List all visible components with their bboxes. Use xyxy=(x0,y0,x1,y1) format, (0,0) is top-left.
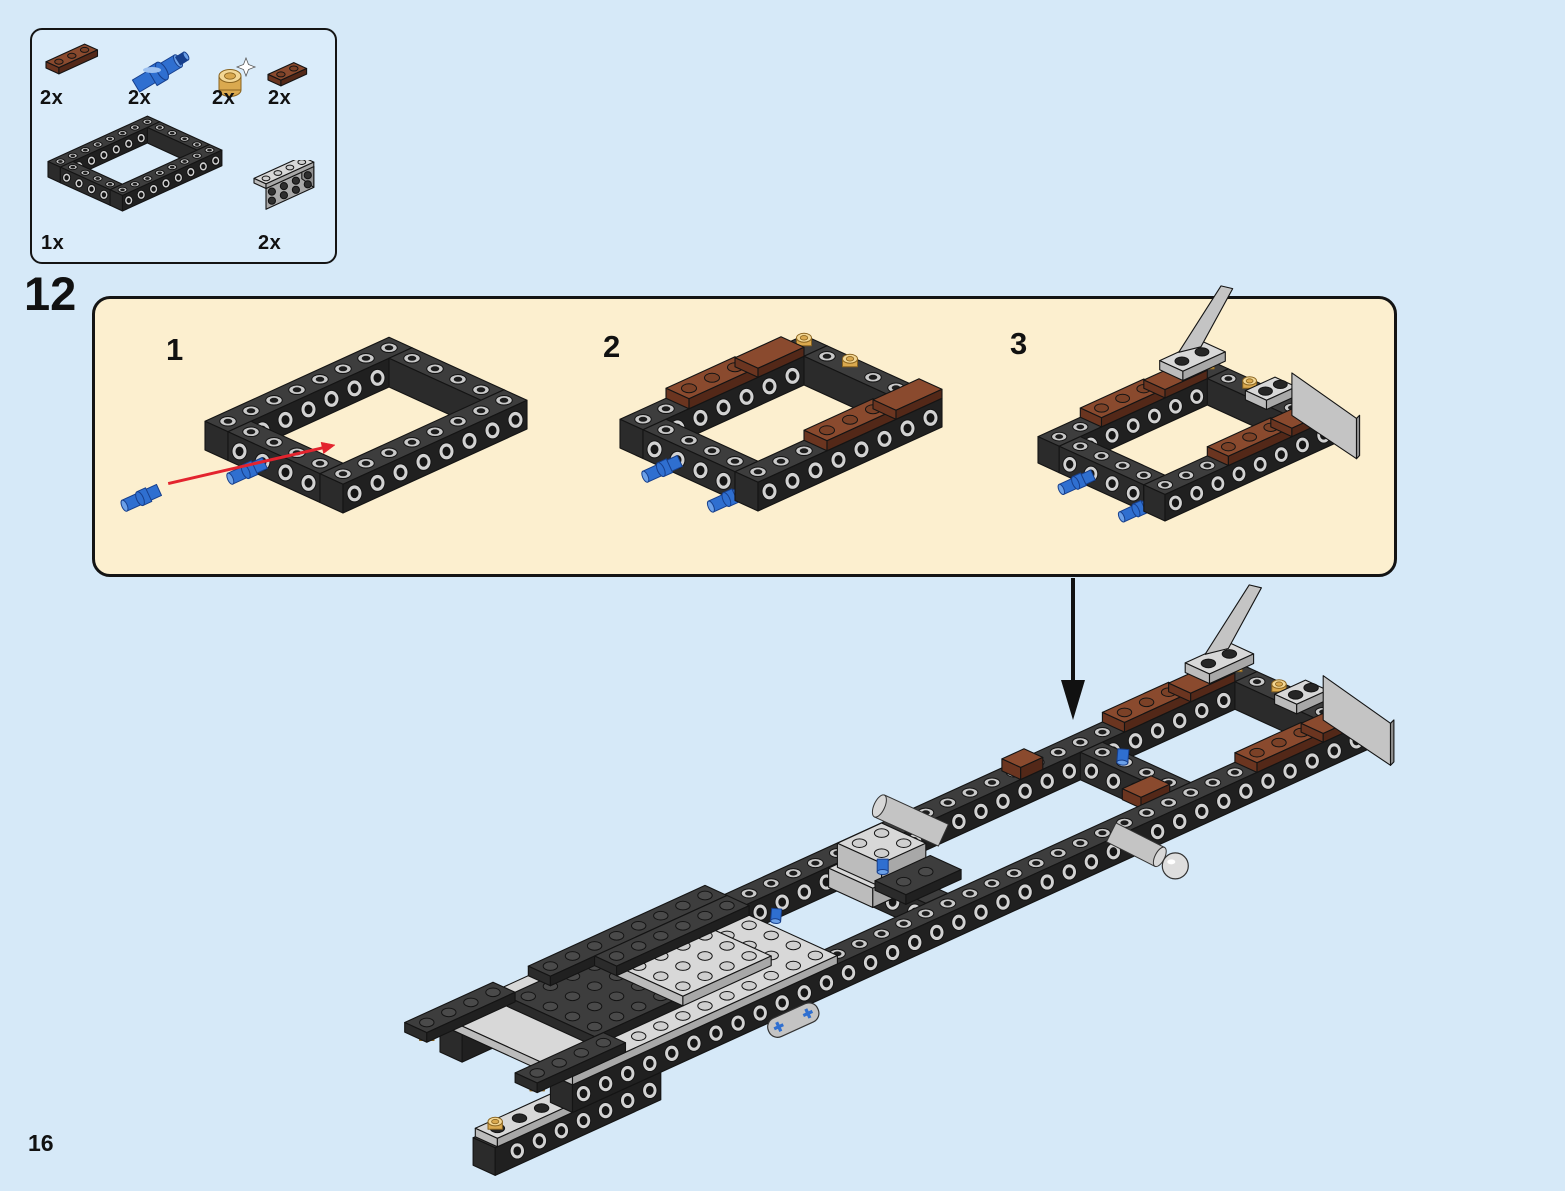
part-qty-label: 2x xyxy=(268,87,291,110)
part-qty-label: 2x xyxy=(258,232,281,255)
parts-callout-box: 2x 2x 2x 2x 1x 2x xyxy=(30,28,337,264)
page-number: 16 xyxy=(28,1130,54,1157)
part-qty-label: 2x xyxy=(128,87,151,110)
step-number: 12 xyxy=(24,266,76,321)
substep-2-illustration xyxy=(590,323,1030,575)
substep-1-illustration xyxy=(100,330,580,575)
part-qty-label: 2x xyxy=(212,87,235,110)
substep-3-illustration xyxy=(1000,285,1420,575)
part-light-gray-bracket-illustration xyxy=(250,160,338,240)
main-assembly-illustration xyxy=(320,580,1460,1180)
part-qty-label: 1x xyxy=(41,232,64,255)
part-black-technic-frame-illustration xyxy=(36,114,250,238)
down-arrow-icon xyxy=(1053,578,1093,728)
part-qty-label: 2x xyxy=(40,87,63,110)
instruction-page: 2x 2x 2x 2x 1x 2x 12 1 2 3 16 xyxy=(0,0,1565,1191)
